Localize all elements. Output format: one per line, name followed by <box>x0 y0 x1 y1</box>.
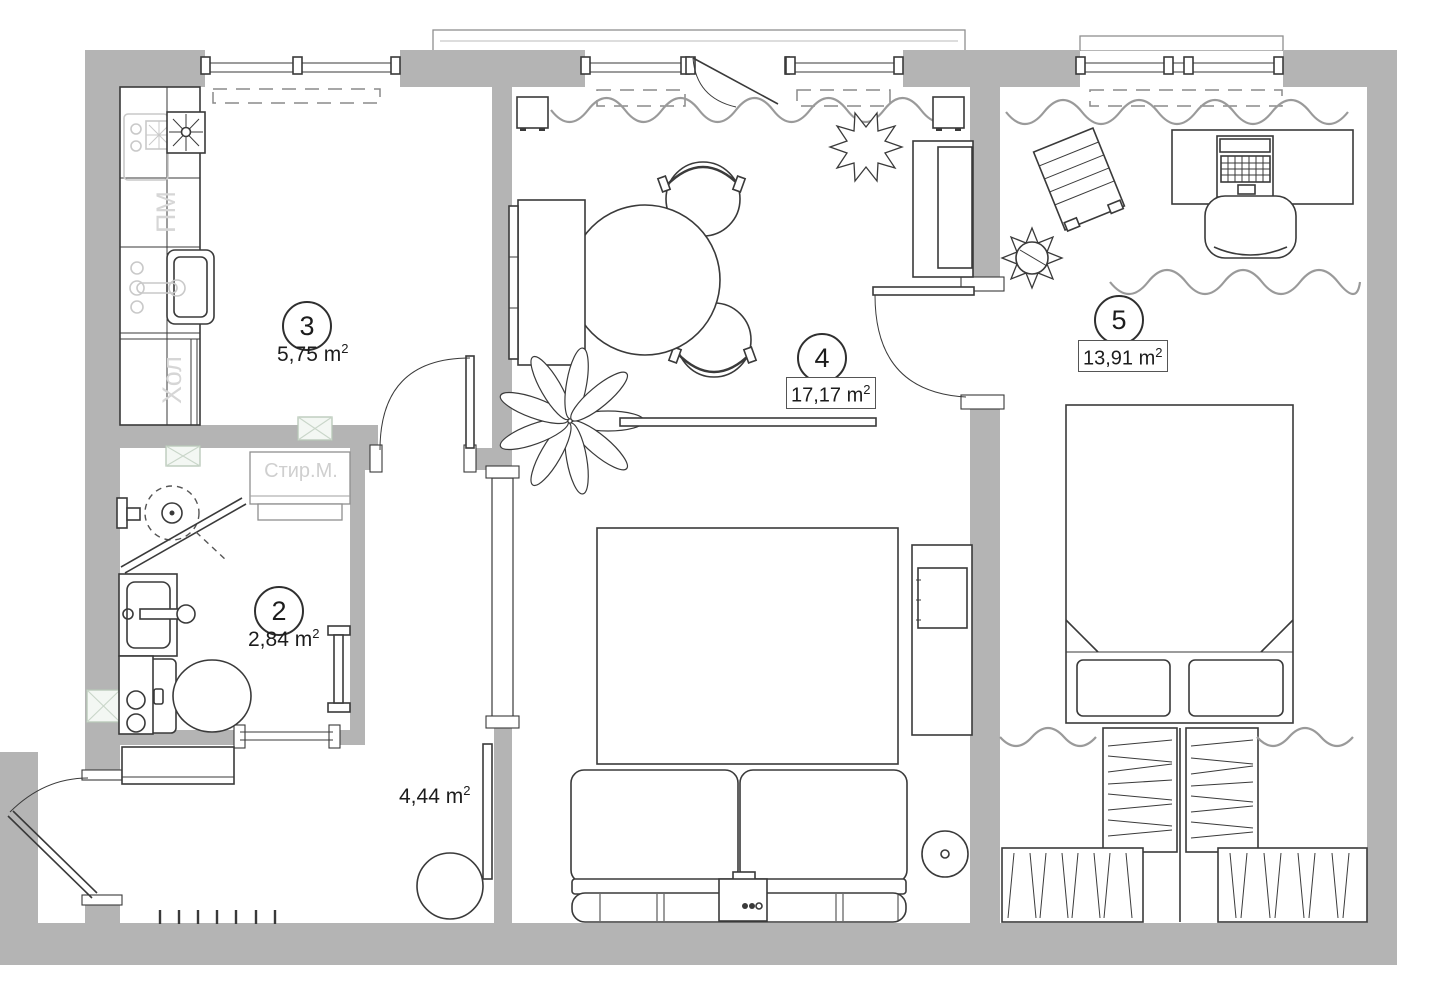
office-chair-icon <box>1205 196 1296 258</box>
room-area-bedroom: 13,91 m2 <box>1078 340 1168 372</box>
living-window-icon <box>581 51 690 87</box>
plant-icon <box>830 113 902 181</box>
curtain-icon <box>1000 728 1096 746</box>
bed-icon <box>1066 405 1293 723</box>
curtain-icon <box>1257 728 1353 746</box>
room-number-living: 4 <box>797 333 847 383</box>
cabinet-icon <box>913 141 973 277</box>
washing-machine-label: Стир.М. <box>254 460 348 483</box>
toilet-icon <box>149 659 251 733</box>
kitchen-door-icon <box>370 356 476 472</box>
plant3-icon <box>1002 228 1062 288</box>
bedroom-door-icon <box>873 277 1004 409</box>
fridge-label: Хол <box>140 348 204 412</box>
bathroom-door-icon <box>234 725 340 748</box>
sofa-bed-icon <box>571 528 907 922</box>
laptop-icon <box>1217 136 1273 197</box>
drying-rack-icon <box>1034 128 1126 232</box>
towel-rail-icon <box>328 626 350 712</box>
sideboard-icon <box>509 200 585 365</box>
room-area-hallway: 4,44 m2 <box>399 783 470 809</box>
hob-icon <box>167 112 205 153</box>
curtain-icon <box>1110 270 1360 294</box>
glass-partition <box>486 466 519 728</box>
dining-table-icon <box>570 205 720 355</box>
room-area-bathroom: 2,84 m2 <box>248 626 319 652</box>
room-area-kitchen: 5,75 m2 <box>277 341 348 367</box>
room-number-bedroom: 5 <box>1094 295 1144 345</box>
side-table-icon <box>922 831 968 877</box>
curtain-icon <box>1006 100 1348 124</box>
bedroom-window-icon <box>1076 51 1283 87</box>
floor-plan: 3 5,75 m2 2 2,84 m2 4 17,17 m2 5 13,91 m… <box>0 0 1452 1000</box>
radiator-icon <box>213 89 1282 106</box>
living-window2-icon <box>786 51 903 87</box>
room-area-living: 17,17 m2 <box>786 377 876 409</box>
plan-linework <box>0 0 1452 1000</box>
mirror-icon <box>483 744 492 879</box>
coat-hooks-icon <box>160 910 275 924</box>
tv-console-icon <box>912 545 972 735</box>
balcony-outline <box>433 30 1283 52</box>
tv-icon <box>719 872 767 921</box>
shelf-icon <box>620 418 876 426</box>
balcony-door-icon <box>686 51 794 107</box>
washbasin-icon <box>119 574 195 656</box>
dishwasher-label: ПМ <box>134 180 198 244</box>
curtain-icon <box>551 98 958 122</box>
closet-icon <box>1002 728 1367 922</box>
hall-wardrobe-icon <box>122 747 234 784</box>
pouf-icon <box>417 853 483 919</box>
shower-icon <box>117 486 246 573</box>
bathroom-cabinet <box>119 656 153 734</box>
kitchen-window-icon <box>201 51 400 87</box>
